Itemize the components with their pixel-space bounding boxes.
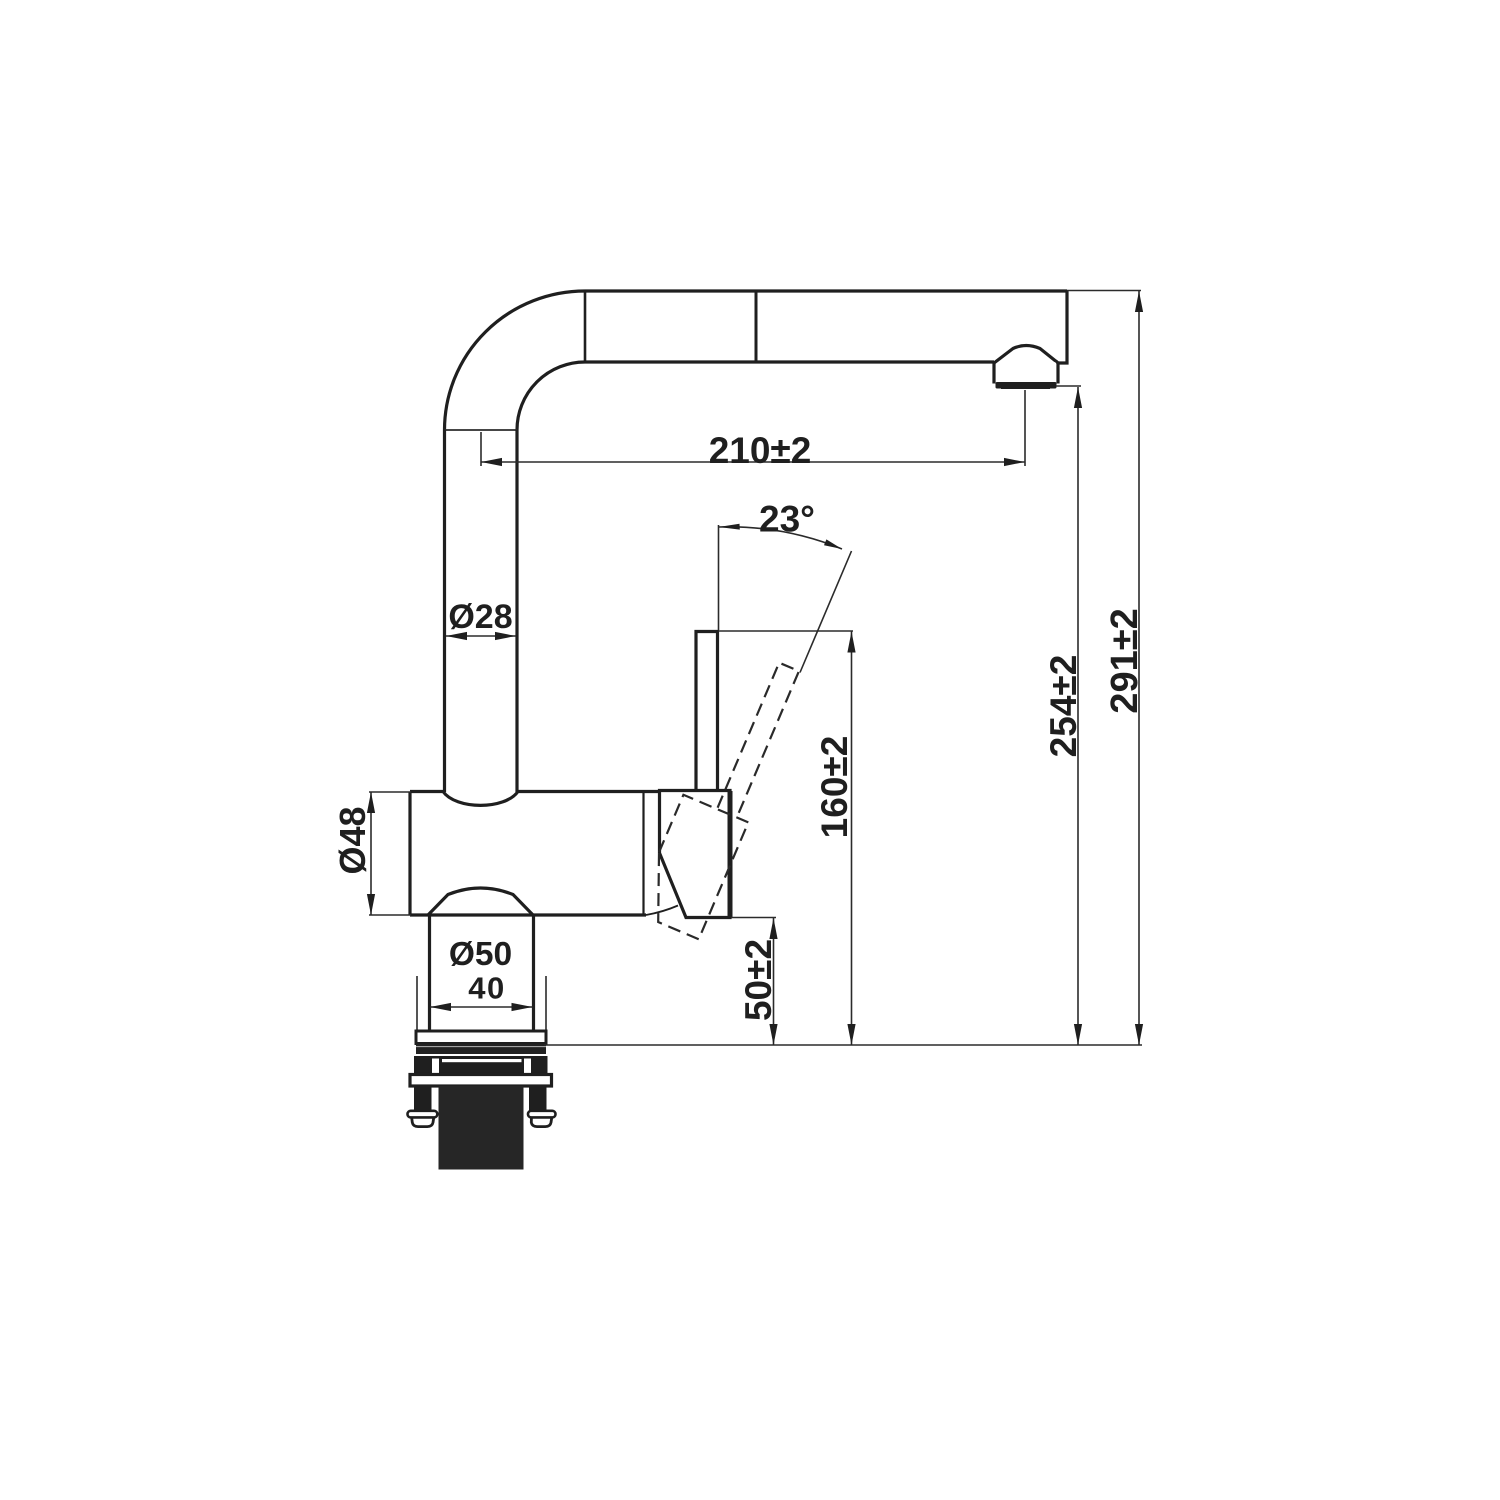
svg-text:50±2: 50±2 xyxy=(738,939,779,1021)
svg-text:Ø28: Ø28 xyxy=(448,598,512,636)
svg-text:291±2: 291±2 xyxy=(1104,608,1146,713)
svg-text:254±2: 254±2 xyxy=(1043,655,1084,758)
svg-text:160±2: 160±2 xyxy=(814,736,855,839)
svg-text:23°: 23° xyxy=(759,499,815,540)
svg-text:40: 40 xyxy=(468,971,505,1006)
svg-text:210±2: 210±2 xyxy=(709,430,812,471)
svg-text:Ø48: Ø48 xyxy=(332,806,373,874)
svg-text:Ø50: Ø50 xyxy=(449,936,512,973)
